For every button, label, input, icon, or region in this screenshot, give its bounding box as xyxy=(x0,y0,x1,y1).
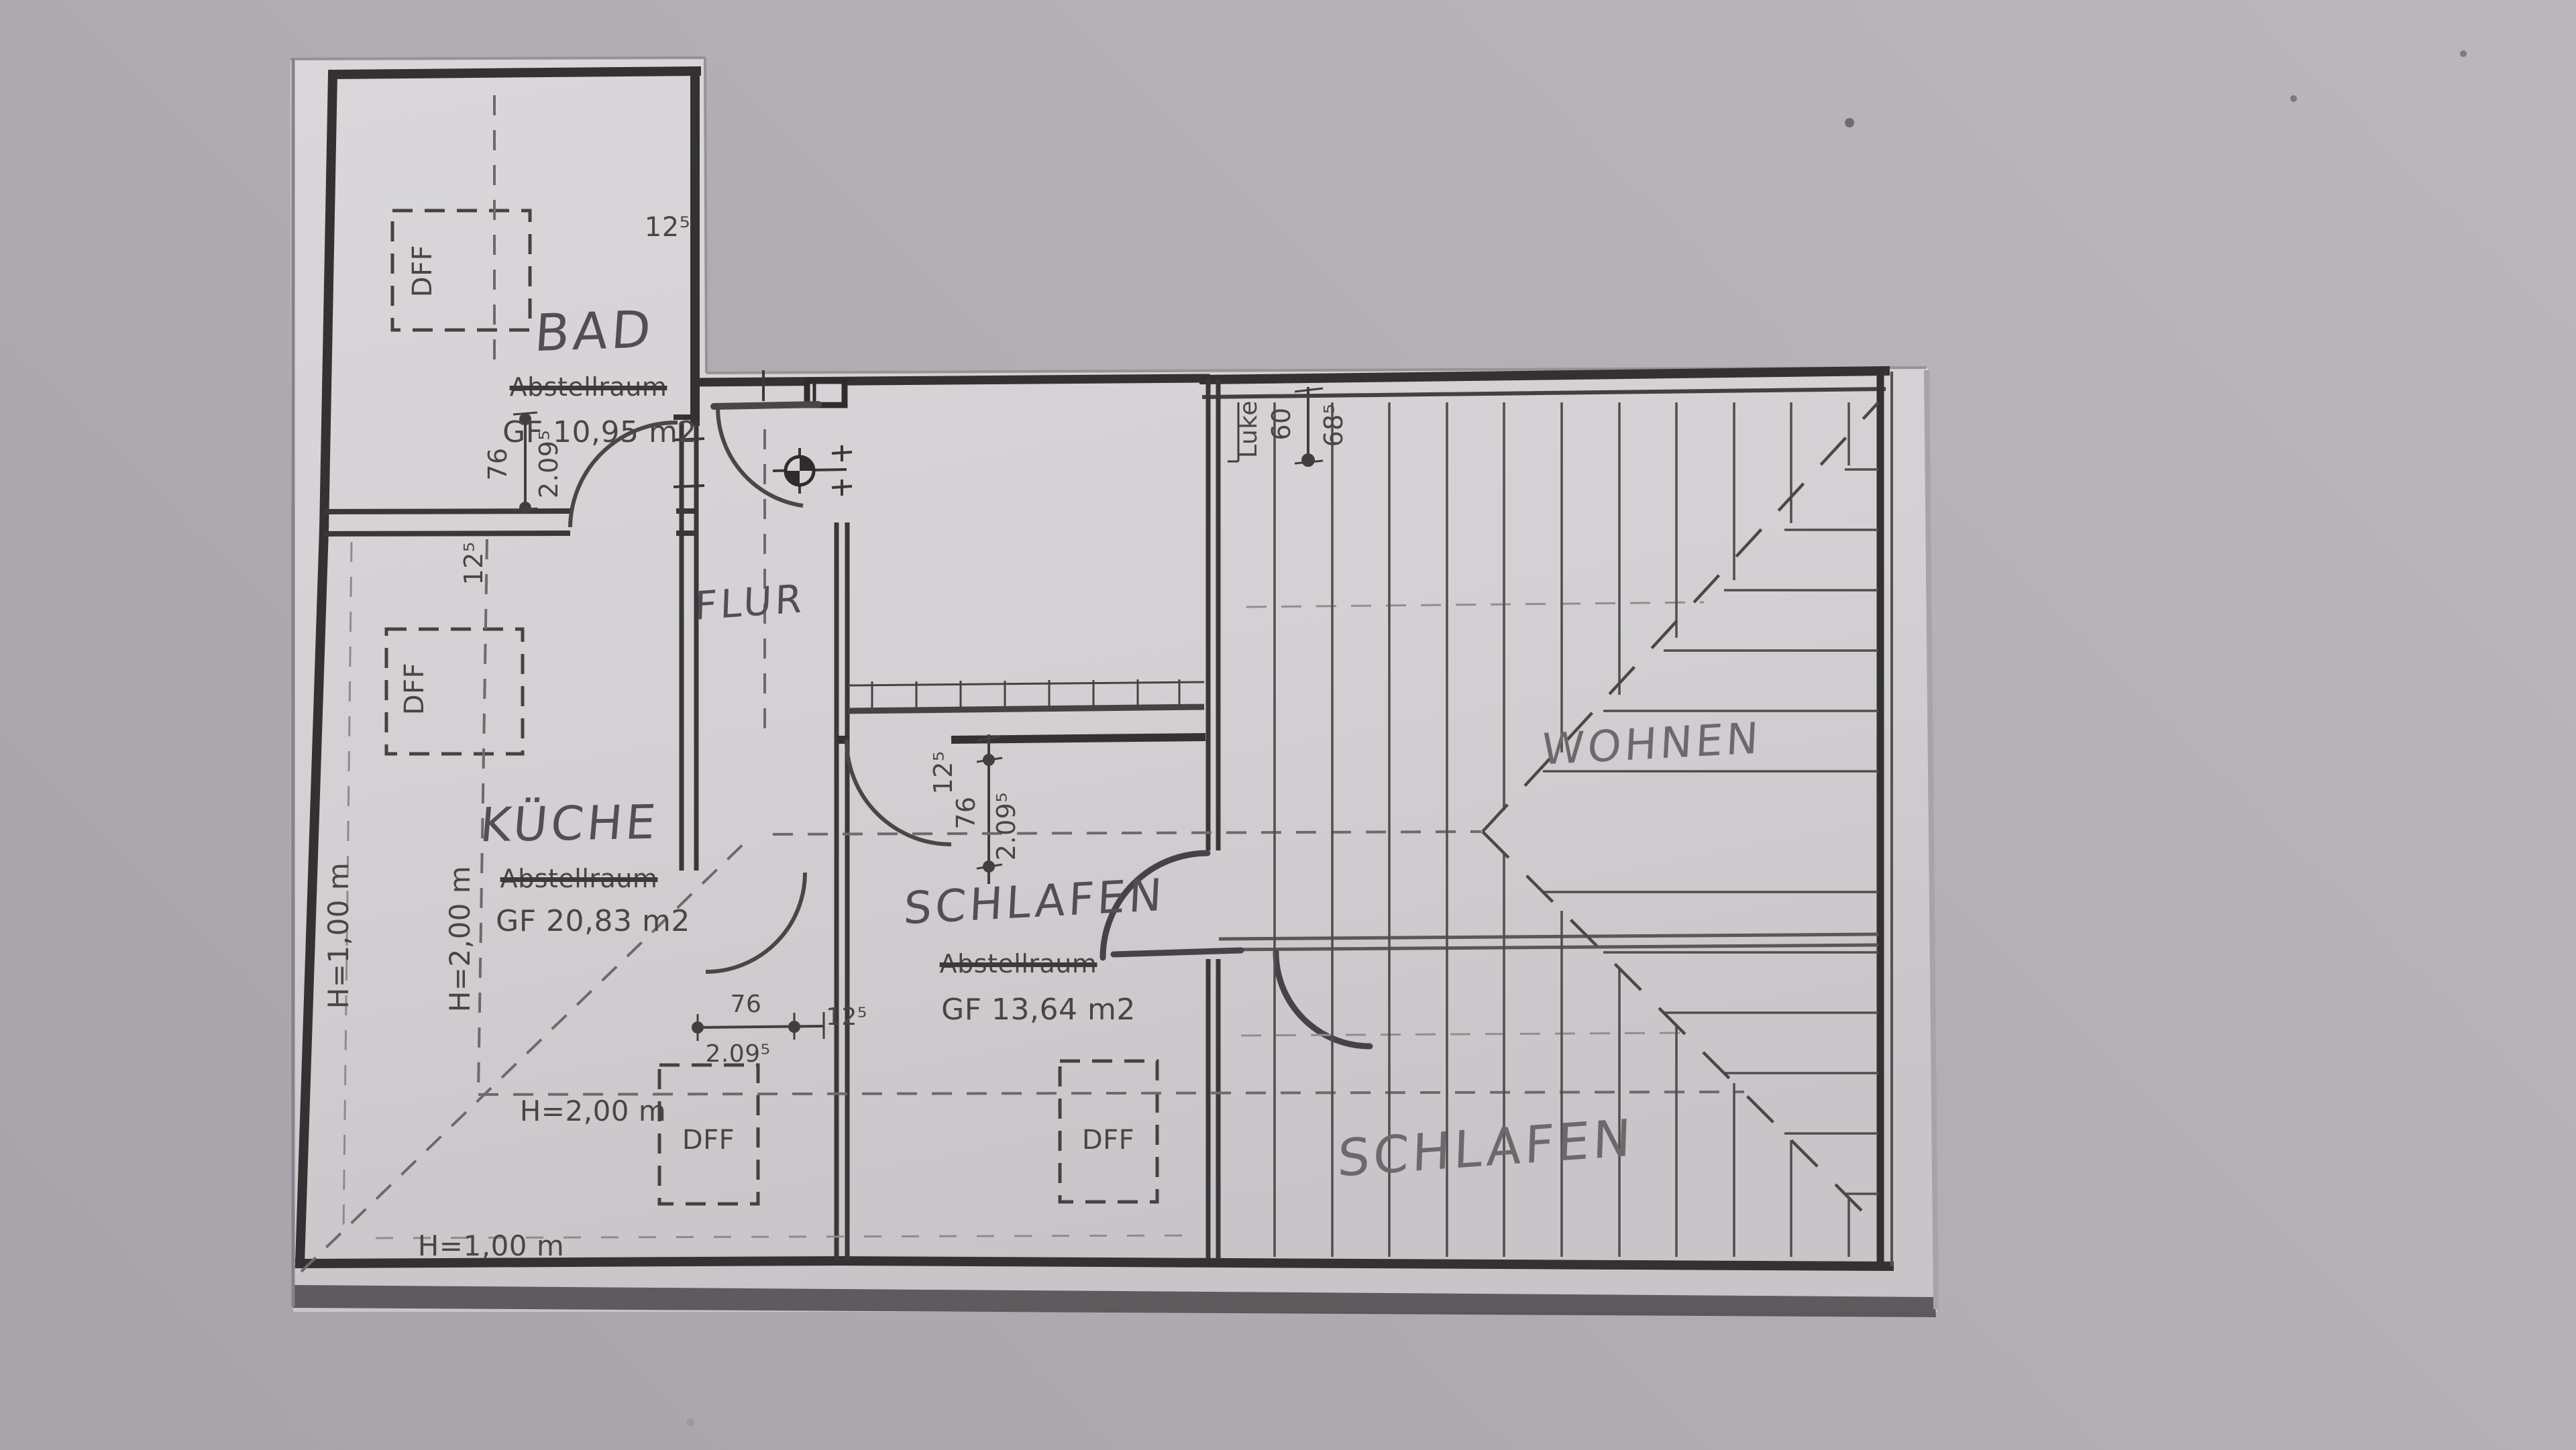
dim-bad-wall-thickness: 12⁵ xyxy=(461,541,486,585)
dim-bad-roof-thickness: 12⁵ xyxy=(645,214,690,241)
height-label-h100-horizontal: H=1,00 m xyxy=(418,1232,565,1260)
floor-plan-photo: BAD Abstellraum GF 10,95 m2 12⁵ 76 2.09⁵… xyxy=(0,0,2576,1450)
room-old-label-kueche: Abstellraum xyxy=(500,866,658,891)
dim-mitte-door-width: 76 xyxy=(953,796,979,829)
height-label-h200-horizontal: H=2,00 m xyxy=(520,1097,667,1125)
room-label-kueche: KÜCHE xyxy=(478,799,661,849)
room-area-schlafen-mitte: GF 13,64 m2 xyxy=(941,995,1136,1025)
dim-flur-door-width: 76 xyxy=(731,993,762,1017)
skylight-label-bad: DFF xyxy=(409,245,436,297)
room-old-label-schlafen-mitte: Abstellraum xyxy=(940,951,1097,977)
dim-mitte-door-height: 2.09⁵ xyxy=(994,792,1019,860)
room-old-label-bad: Abstellraum xyxy=(510,374,667,400)
room-area-kueche: GF 20,83 m2 xyxy=(496,907,690,936)
room-label-bad: BAD xyxy=(533,304,656,359)
hatch-dim-offset: 68⁵ xyxy=(1321,403,1346,447)
skylight-label-southwest: DFF xyxy=(682,1127,735,1154)
dim-bad-door-height: 2.09⁵ xyxy=(536,430,561,498)
hand-door-leaf xyxy=(1114,950,1241,954)
room-label-wohnen: WOHNEN xyxy=(1541,717,1763,771)
room-area-bad: GF 10,95 m2 xyxy=(502,418,697,447)
hatch-dim-width: 60 xyxy=(1269,407,1294,440)
door-leaf-landing xyxy=(714,404,818,406)
dim-flur-wall-thickness: 12⁵ xyxy=(826,1005,867,1029)
dim-flur-door-height: 2.09⁵ xyxy=(705,1042,770,1066)
height-label-h200-vertical: H=2,00 m xyxy=(446,866,474,1013)
floor-plan-drawing xyxy=(0,0,2576,1450)
hatch-label: Luke xyxy=(1237,400,1261,458)
dim-mitte-wall-thickness: 12⁵ xyxy=(930,750,956,794)
dim-bad-door-width: 76 xyxy=(485,447,511,480)
room-label-flur: FLUR xyxy=(694,579,806,626)
room-label-schlafen-mitte: SCHLAFEN xyxy=(902,873,1166,932)
height-label-h100-vertical: H=1,00 m xyxy=(325,862,353,1009)
skylight-label-kueche: DFF xyxy=(401,663,428,715)
skylight-label-mitte: DFF xyxy=(1082,1127,1134,1154)
